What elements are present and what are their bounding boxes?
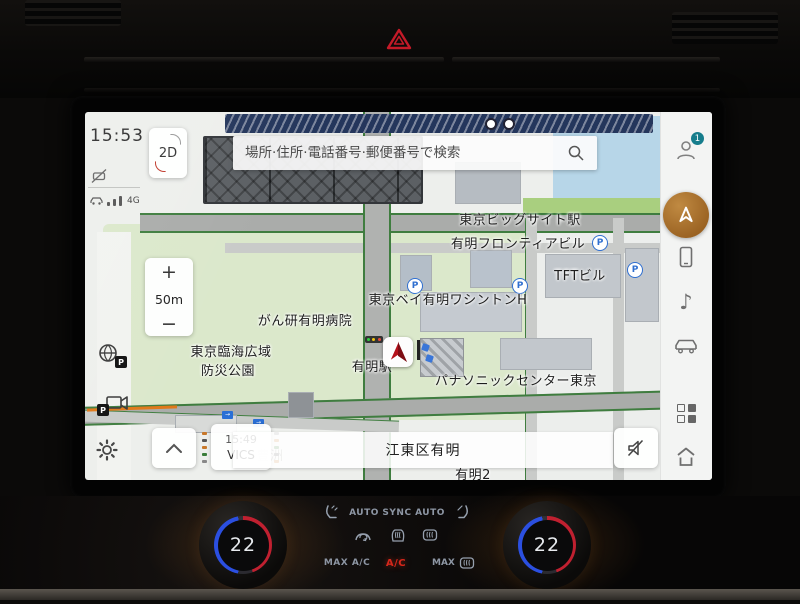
map-station-dot-1 [485, 118, 497, 130]
map-view-2d-button[interactable]: 2D [149, 128, 187, 178]
compass-south-icon [155, 161, 166, 172]
map-building-panasonic [500, 338, 592, 370]
max-defrost-button[interactable]: MAX [432, 556, 475, 570]
phone-app-button[interactable] [660, 244, 712, 270]
air-vent-left [25, 0, 121, 26]
map-label-rinkai-park-2: 防災公園 [201, 360, 255, 379]
map-label-washington-hotel: 東京ベイ有明ワシントンH [369, 289, 528, 308]
passenger-temp-value: 22 [534, 534, 560, 556]
signal-bar [113, 199, 116, 206]
speaker-muted-icon [626, 438, 646, 458]
phone-disconnected-icon [91, 168, 107, 184]
map-label-ganken-hospital: がん研有明病院 [258, 310, 353, 329]
parking-badge: P [115, 356, 127, 368]
auto-passenger-button[interactable]: AUTO [415, 508, 445, 518]
seat-icon [323, 504, 339, 520]
map-label-rinkai-park-1: 東京臨海広域 [190, 341, 271, 360]
gear-icon [95, 438, 119, 462]
front-defrost-button[interactable] [390, 528, 406, 543]
zoom-in-button[interactable]: + [161, 265, 177, 279]
current-area-label: 江東区有明 [386, 440, 461, 460]
map-label-panasonic-center: パナソニックセンター東京 [435, 370, 597, 389]
chevron-up-icon [164, 442, 184, 454]
navigation-app-button[interactable] [663, 192, 709, 238]
rear-defrost-button[interactable] [422, 528, 438, 542]
front-defrost-icon [390, 528, 406, 543]
parking-info-button[interactable]: P [97, 342, 131, 372]
map-road-station [140, 213, 660, 233]
vics-dashes-left [202, 430, 207, 465]
hazard-triangle-icon [386, 28, 412, 50]
map-building [470, 250, 512, 288]
driver-temp-knob[interactable]: 22 [199, 501, 287, 589]
map-station-dot-2 [503, 118, 515, 130]
notification-badge: 1 [691, 132, 704, 145]
max-defrost-label: MAX [432, 558, 455, 568]
air-distribution-button[interactable] [455, 504, 471, 520]
dash-trim-lower [84, 88, 720, 92]
max-ac-button[interactable]: MAX A/C [324, 558, 370, 568]
map-building [625, 248, 659, 322]
map-rail-line [225, 114, 653, 133]
zoom-out-button[interactable]: − [161, 319, 177, 329]
car-arrow-icon [386, 340, 410, 364]
music-note-icon: ♪ [679, 290, 692, 314]
map-label-tokyo-big-sight-station: 東京ビッグサイト駅 [459, 209, 581, 228]
recirculation-button[interactable] [354, 529, 372, 542]
map-building [288, 392, 314, 418]
search-bar[interactable] [233, 136, 597, 170]
dash-trim-left [84, 57, 444, 62]
apps-grid-button[interactable] [660, 402, 712, 424]
car-icon [673, 335, 699, 355]
view-mode-label: 2D [159, 146, 177, 161]
infotainment-screen: P P P P → → 東京ビッグサイト駅 有明フロンティアビル TFTビル 東… [85, 112, 712, 480]
signal-bar [107, 202, 110, 206]
auto-driver-button[interactable]: AUTO [349, 508, 379, 518]
expand-panel-button[interactable] [152, 428, 196, 468]
driver-temp-value: 22 [230, 534, 256, 556]
zoom-control: + 50m − [145, 258, 193, 336]
recirculation-icon [354, 529, 372, 542]
hazard-light-button[interactable] [384, 26, 414, 52]
parking-badge: P [97, 404, 109, 416]
console-trim [0, 589, 800, 600]
map-label-tft-building: TFTビル [554, 265, 606, 284]
rear-defrost-icon [422, 528, 438, 542]
clock: 15:53 [90, 126, 144, 146]
gate-pole-icon [417, 340, 420, 360]
status-divider [88, 187, 140, 188]
search-input[interactable] [233, 145, 555, 161]
nav-arrow-icon [673, 202, 699, 228]
map-scale-label: 50m [155, 292, 183, 307]
current-area-bar[interactable]: 江東区有明 [233, 432, 613, 468]
parking-marker: P [627, 262, 643, 278]
vehicle-app-button[interactable] [660, 332, 712, 358]
home-button[interactable] [660, 444, 712, 470]
connectivity-status: 4G [89, 192, 140, 206]
current-position-marker [383, 337, 413, 367]
rotate-arc-icon [170, 134, 181, 145]
airflow-icon [455, 504, 471, 520]
phone-icon [677, 245, 695, 269]
map-label-ariake-frontier: 有明フロンティアビル [451, 233, 585, 252]
temp-ring: 22 [214, 516, 272, 574]
oneway-sign-icon: → [222, 411, 233, 419]
temp-ring: 22 [518, 516, 576, 574]
settings-button[interactable] [95, 438, 119, 462]
air-vent-right [672, 12, 778, 44]
search-icon[interactable] [555, 144, 597, 162]
ac-button[interactable]: A/C [386, 558, 406, 569]
climate-console: 22 22 AUTO SYNC AUTO [0, 496, 800, 600]
passenger-temp-knob[interactable]: 22 [503, 501, 591, 589]
grid-icon [677, 404, 696, 423]
network-label: 4G [127, 196, 140, 206]
camera-view-button[interactable]: P [101, 392, 139, 422]
sync-button[interactable]: SYNC [382, 508, 411, 518]
parking-marker: P [592, 235, 608, 251]
home-icon [674, 445, 698, 469]
media-app-button[interactable]: ♪ [660, 289, 712, 315]
dashboard-top [0, 0, 800, 98]
heated-seat-button[interactable] [323, 504, 339, 520]
dash-trim-right [452, 57, 720, 62]
profile-button[interactable]: 1 [660, 136, 712, 164]
signal-bar [119, 196, 122, 206]
car-connectivity-icon [89, 195, 104, 206]
max-defrost-icon [459, 556, 475, 570]
traffic-light-icon [365, 336, 383, 343]
mute-button[interactable] [614, 428, 658, 468]
